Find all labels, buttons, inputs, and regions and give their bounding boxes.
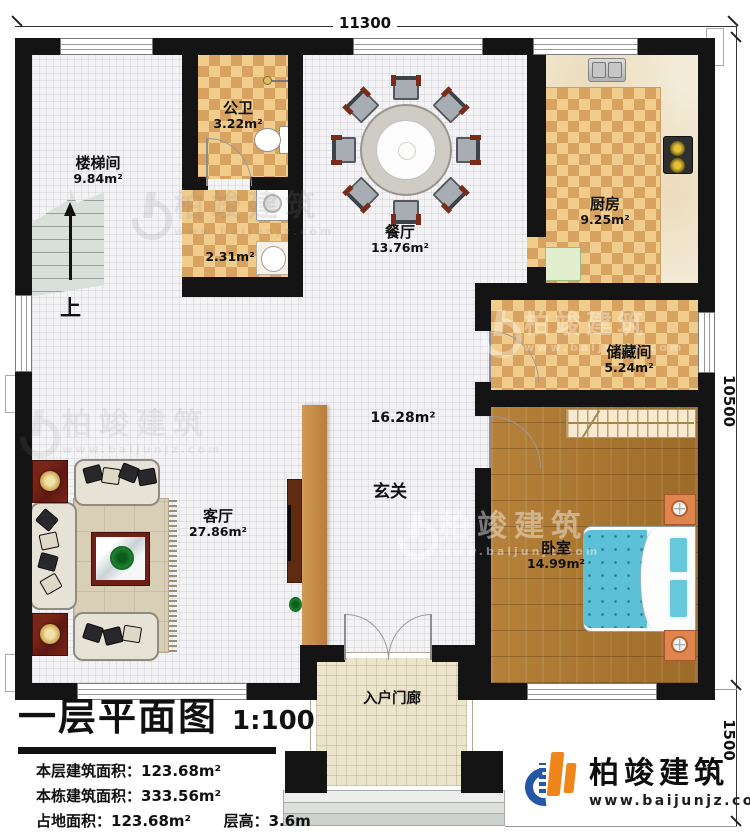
faucet-pipe — [272, 80, 288, 82]
room-name: 公卫 — [203, 100, 273, 117]
title-block: 一层平面图 1:100 — [18, 698, 315, 736]
vanity-basin — [261, 246, 286, 272]
table-lamp — [40, 471, 60, 491]
title-underline — [18, 747, 276, 754]
wall — [288, 55, 303, 297]
faucet-icon — [263, 76, 272, 85]
potted-plant — [110, 546, 134, 570]
sofa-pillow — [137, 468, 158, 487]
room-name: 楼梯间 — [55, 155, 141, 172]
dim-tick — [727, 15, 738, 26]
window — [15, 295, 32, 372]
dining-chair — [393, 200, 419, 224]
room-label-storage: 储藏间 5.24m² — [588, 344, 670, 376]
room-label-foyer-area: 16.28m² — [370, 410, 436, 426]
stove-burner — [670, 158, 685, 173]
extension-line — [715, 689, 737, 690]
bed-sheet-fold — [640, 528, 668, 630]
wall — [475, 300, 491, 331]
logo-bar — [563, 763, 576, 793]
brand-url: www.baijunjz.com — [589, 793, 750, 809]
nightstand-lamp — [671, 500, 688, 517]
room-area: 13.76m² — [350, 241, 450, 255]
washer-door — [263, 194, 282, 213]
stove-burner — [670, 141, 685, 156]
room-label-kitchen: 厨房 9.25m² — [565, 196, 645, 228]
stat-row: 本栋建筑面积：333.56m² — [36, 784, 311, 809]
room-area: 9.84m² — [55, 172, 141, 186]
stat-row: 本层建筑面积：123.68m² — [36, 759, 311, 784]
room-area: 14.99m² — [510, 557, 602, 571]
porch-column — [461, 751, 503, 793]
room-label-living: 客厅 27.86m² — [172, 508, 264, 540]
bed-pillow — [668, 578, 689, 619]
stat-label: 层高： — [224, 812, 269, 830]
tv-screen — [288, 505, 291, 561]
window — [533, 38, 638, 55]
plan-scale: 1:100 — [232, 707, 315, 736]
room-name: 餐厅 — [350, 224, 450, 241]
page-title: 一层平面图 — [18, 698, 218, 736]
porch-step — [283, 813, 505, 826]
wall — [182, 277, 303, 297]
stat-label: 本层建筑面积： — [36, 762, 141, 780]
dining-table-center — [398, 142, 416, 160]
area-stats: 本层建筑面积：123.68m² 本栋建筑面积：333.56m² 占地面积：123… — [36, 759, 311, 834]
brand-logo: 柏竣建筑 www.baijunjz.com — [525, 752, 750, 814]
table-lamp — [40, 624, 60, 644]
room-label-bathroom: 公卫 3.22m² — [203, 100, 273, 132]
wall — [527, 55, 546, 237]
dim-side-label: 10500 — [720, 368, 738, 434]
brand-logo-icon — [525, 752, 579, 814]
wall — [182, 55, 198, 179]
stat-value: 123.68m² — [111, 812, 191, 830]
dim-tick — [11, 15, 22, 26]
wall — [182, 177, 208, 190]
wall — [475, 407, 491, 416]
stairs-arrow-head — [64, 202, 76, 216]
dining-chair — [393, 76, 419, 100]
floor-plan-canvas: 11300 10500 1500 上 — [0, 0, 750, 834]
porch-floor — [316, 658, 467, 786]
extension-line — [505, 826, 737, 827]
room-area: 2.31m² — [203, 250, 257, 264]
sink-basin — [608, 62, 622, 78]
room-area: 5.24m² — [588, 361, 670, 375]
window — [353, 38, 483, 55]
room-area: 27.86m² — [172, 525, 264, 539]
cabinet-plant — [289, 597, 302, 612]
sink-basin — [592, 62, 606, 78]
brand-name: 柏竣建筑 — [589, 757, 750, 790]
room-label-dining: 餐厅 13.76m² — [350, 224, 450, 256]
stat-label: 本栋建筑面积： — [36, 787, 141, 805]
room-label-foyer: 玄关 — [362, 483, 418, 503]
nightstand-lamp — [671, 636, 688, 653]
room-area: 9.25m² — [565, 213, 645, 227]
dim-top-label: 11300 — [333, 14, 397, 32]
window — [527, 683, 657, 700]
stat-value: 3.6m — [269, 812, 311, 830]
dining-chair — [456, 137, 480, 163]
window — [698, 312, 715, 373]
dining-chair — [332, 137, 356, 163]
room-name: 玄关 — [362, 483, 418, 503]
window — [60, 38, 153, 55]
sofa-pillow — [122, 625, 142, 644]
stat-label: 占地面积： — [36, 812, 111, 830]
logo-dots — [539, 763, 546, 793]
wall — [475, 468, 491, 683]
wall — [432, 645, 475, 662]
bed-pillow — [668, 536, 689, 574]
wall — [475, 382, 491, 390]
stat-value: 333.56m² — [141, 787, 221, 805]
stat-value: 123.68m² — [141, 762, 221, 780]
room-label-stairwell: 楼梯间 9.84m² — [55, 155, 141, 187]
wall — [475, 390, 715, 407]
room-label-laundry: 2.31m² — [203, 250, 257, 264]
room-name: 储藏间 — [588, 344, 670, 361]
room-area: 3.22m² — [203, 117, 273, 131]
room-label-bedroom: 卧室 14.99m² — [510, 540, 602, 572]
room-name: 厨房 — [565, 196, 645, 213]
wall — [475, 283, 715, 300]
stairs-up-label: 上 — [60, 292, 84, 322]
room-label-porch: 入户门廊 — [350, 691, 434, 708]
stairs-direction-arrow — [69, 214, 72, 280]
room-name: 入户门廊 — [350, 691, 434, 708]
wardrobe-rod — [568, 422, 694, 424]
room-name: 客厅 — [172, 508, 264, 525]
tv-partition-wall — [302, 405, 327, 655]
room-area: 16.28m² — [370, 410, 436, 426]
wall — [300, 645, 345, 662]
fridge — [545, 247, 581, 281]
room-name: 卧室 — [510, 540, 602, 557]
stat-row: 占地面积：123.68m² 层高：3.6m — [36, 809, 311, 834]
